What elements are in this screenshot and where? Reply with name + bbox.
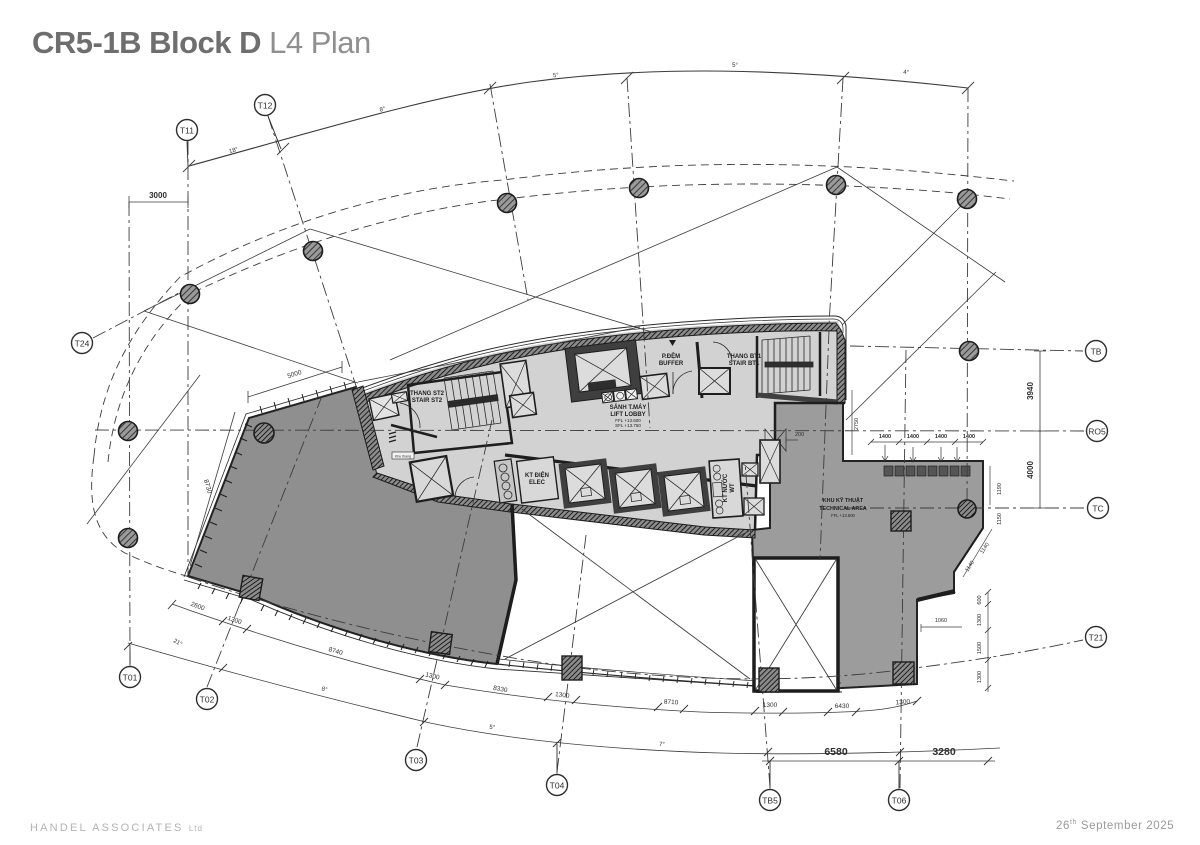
svg-text:2750: 2750 [854,418,860,430]
svg-text:1300: 1300 [425,672,441,682]
svg-text:T01: T01 [123,673,138,683]
svg-text:1300: 1300 [555,691,571,700]
svg-text:T24: T24 [75,339,90,349]
svg-text:1300: 1300 [977,671,983,683]
svg-text:6430: 6430 [835,703,850,710]
svg-text:SFL +13.750: SFL +13.750 [615,423,641,428]
svg-text:P.ĐỆM: P.ĐỆM [662,352,680,360]
svg-text:RO5: RO5 [1088,427,1106,437]
svg-text:T21: T21 [1089,633,1104,643]
svg-text:8710: 8710 [664,699,679,707]
svg-text:1300: 1300 [895,698,910,706]
svg-text:1500: 1500 [977,642,983,654]
svg-text:1300: 1300 [977,614,983,626]
svg-text:7°: 7° [659,742,666,748]
svg-text:1400: 1400 [935,434,947,440]
svg-text:WT: WT [730,483,736,493]
svg-text:5000: 5000 [287,369,303,380]
svg-text:BUFFER: BUFFER [659,361,684,367]
svg-text:5°: 5° [489,725,496,732]
svg-text:21°: 21° [172,638,183,648]
svg-text:TECHNICAL AREA: TECHNICAL AREA [819,506,867,512]
svg-text:KHU KỸ THUẬT: KHU KỸ THUẬT [823,497,864,504]
svg-text:5°: 5° [553,73,560,80]
svg-text:Khu thang: Khu thang [395,455,411,459]
svg-text:T11: T11 [180,126,194,136]
svg-text:KT NƯỚC: KT NƯỚC [721,473,729,502]
svg-text:ELEC: ELEC [529,480,546,486]
svg-text:T03: T03 [409,756,424,766]
svg-text:3280: 3280 [932,746,956,758]
svg-text:1140: 1140 [979,542,990,555]
svg-text:T02: T02 [200,695,215,705]
svg-text:1400: 1400 [907,434,919,440]
svg-text:3940: 3940 [1026,382,1035,400]
svg-text:200: 200 [795,432,804,438]
svg-text:600: 600 [977,595,983,604]
svg-text:1140: 1140 [964,560,975,573]
svg-text:TB: TB [1091,347,1102,357]
svg-text:1400: 1400 [879,434,891,440]
svg-text:8°: 8° [321,686,329,693]
svg-text:THANG BT1: THANG BT1 [727,354,762,360]
svg-text:5°: 5° [732,63,738,69]
svg-text:T06: T06 [892,796,907,806]
svg-text:STAIR ST2: STAIR ST2 [412,398,443,404]
svg-text:3000: 3000 [149,191,167,200]
svg-text:1300: 1300 [763,702,778,709]
svg-text:T04: T04 [550,781,565,791]
svg-text:6580: 6580 [824,746,848,758]
svg-text:1150: 1150 [997,513,1003,525]
svg-text:SẢNH T.MÁY: SẢNH T.MÁY [610,404,647,411]
svg-text:8730: 8730 [202,479,213,495]
svg-text:1300: 1300 [227,615,243,626]
svg-text:KT ĐIỆN: KT ĐIỆN [525,471,549,479]
svg-text:TB5: TB5 [762,796,778,806]
svg-text:STAIR BT1: STAIR BT1 [729,361,760,367]
svg-text:4000: 4000 [1026,461,1035,479]
svg-text:4°: 4° [903,70,910,76]
svg-text:THANG ST2: THANG ST2 [410,391,445,397]
svg-text:1400: 1400 [963,434,975,440]
svg-text:FFL +13.600: FFL +13.600 [831,513,855,518]
svg-text:1060: 1060 [935,618,947,624]
svg-text:T12: T12 [258,101,273,111]
svg-text:TC: TC [1092,504,1103,514]
svg-text:18°: 18° [229,147,240,155]
svg-text:1190: 1190 [997,483,1003,495]
